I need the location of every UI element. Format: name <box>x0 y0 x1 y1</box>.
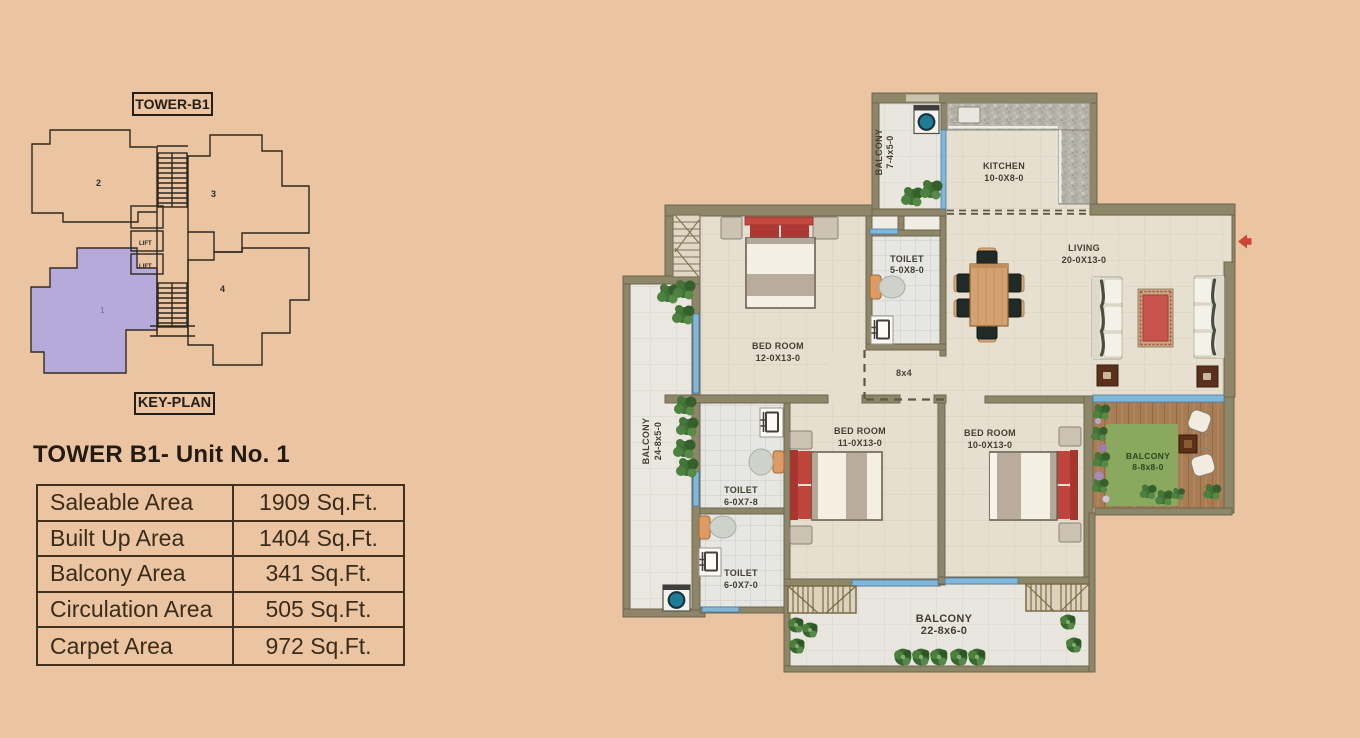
svg-text:TOILET: TOILET <box>724 485 758 495</box>
svg-text:BALCONY: BALCONY <box>874 129 884 176</box>
svg-text:5-0X8-0: 5-0X8-0 <box>890 265 924 275</box>
svg-text:10-0X13-0: 10-0X13-0 <box>968 440 1013 450</box>
svg-text:8-8x8-0: 8-8x8-0 <box>1132 462 1163 472</box>
svg-text:BED ROOM: BED ROOM <box>834 426 886 436</box>
svg-text:LIFT: LIFT <box>139 241 152 247</box>
svg-text:LIVING: LIVING <box>1068 243 1100 253</box>
svg-text:24-8x5-0: 24-8x5-0 <box>653 422 663 460</box>
svg-text:11-0X13-0: 11-0X13-0 <box>838 438 882 448</box>
svg-text:LIFT: LIFT <box>139 264 152 270</box>
svg-text:BALCONY: BALCONY <box>916 613 973 625</box>
svg-text:20-0X13-0: 20-0X13-0 <box>1062 255 1107 265</box>
svg-text:22-8x6-0: 22-8x6-0 <box>921 625 967 637</box>
svg-text:6-0X7-0: 6-0X7-0 <box>724 580 758 590</box>
svg-text:6-0X7-8: 6-0X7-8 <box>724 497 758 507</box>
svg-text:2: 2 <box>96 178 101 188</box>
svg-text:TOILET: TOILET <box>890 254 924 264</box>
svg-text:BED ROOM: BED ROOM <box>964 428 1016 438</box>
svg-text:TOILET: TOILET <box>724 568 758 578</box>
svg-text:BALCONY: BALCONY <box>1126 451 1170 461</box>
svg-text:12-0X13-0: 12-0X13-0 <box>756 353 801 363</box>
svg-text:7-4x5-0: 7-4x5-0 <box>885 135 895 168</box>
svg-text:BALCONY: BALCONY <box>641 418 651 465</box>
svg-text:10-0X8-0: 10-0X8-0 <box>984 173 1023 183</box>
svg-text:1: 1 <box>100 306 105 315</box>
svg-text:3: 3 <box>211 189 216 199</box>
svg-text:8x4: 8x4 <box>896 368 912 378</box>
svg-text:KITCHEN: KITCHEN <box>983 161 1025 171</box>
svg-text:4: 4 <box>220 284 225 294</box>
svg-text:BED ROOM: BED ROOM <box>752 341 804 351</box>
